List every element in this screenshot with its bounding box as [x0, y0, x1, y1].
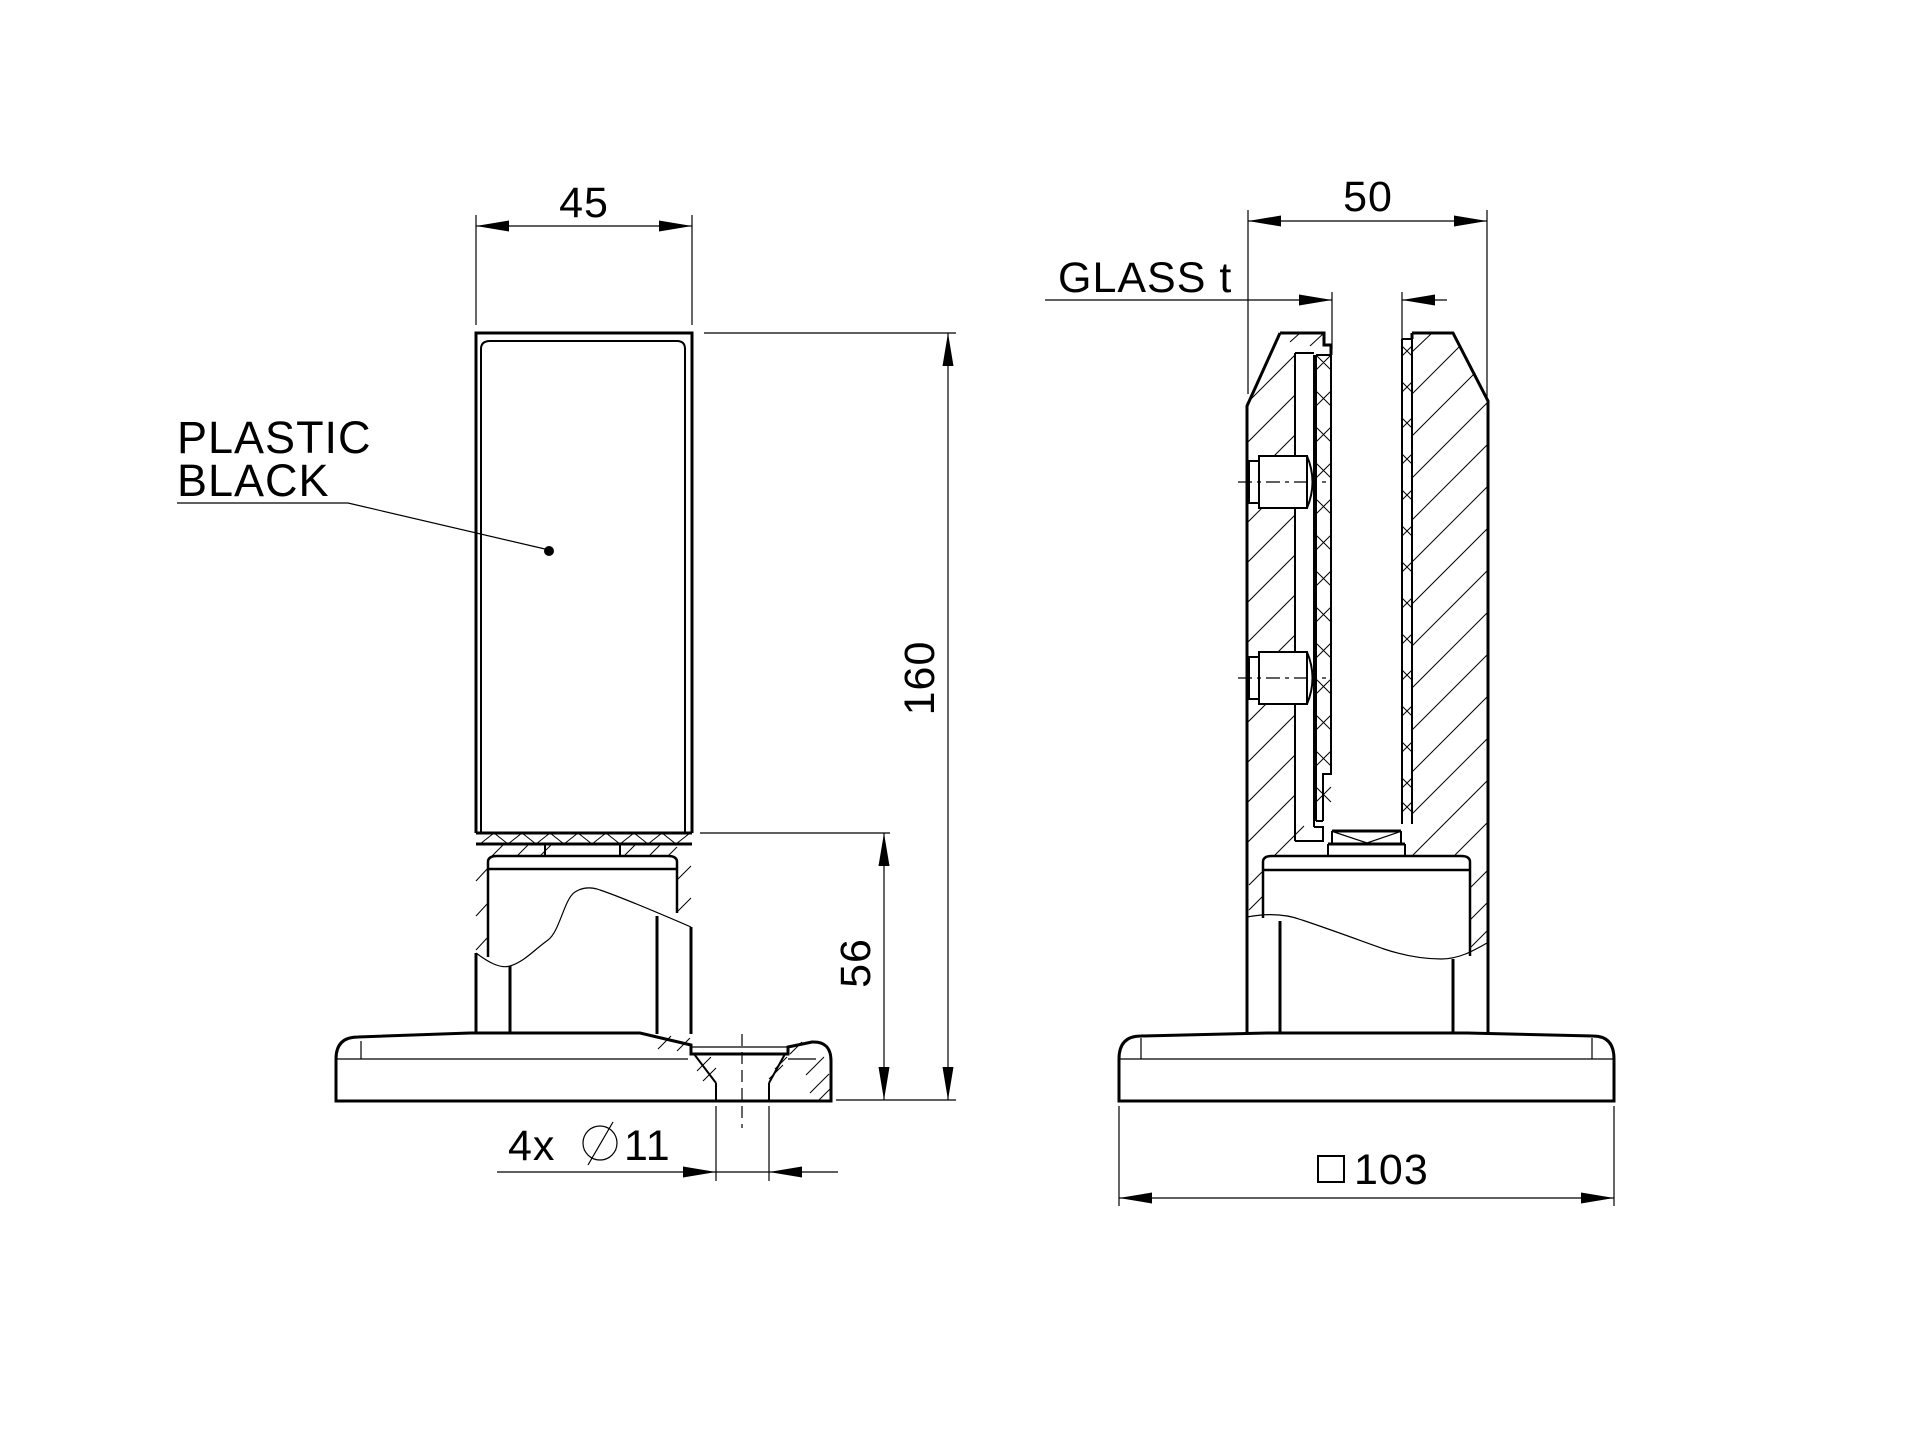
set-screw-top — [1238, 456, 1326, 508]
side-base-inner-lines — [1119, 1038, 1614, 1059]
front-base-height-dim-label: 56 — [832, 938, 880, 988]
material-leader-line — [177, 503, 545, 549]
dim-45-arrow-right — [659, 221, 692, 232]
front-dimensions: 45 160 56 4x 11 — [476, 179, 956, 1181]
dim-50-arrow-right — [1454, 216, 1487, 227]
glass-thickness-arrow-left — [1299, 295, 1332, 306]
dim-50-arrow-left — [1248, 216, 1281, 227]
side-neck — [1328, 844, 1405, 856]
side-base-outline — [1119, 1033, 1614, 1101]
glass-thickness-arrow-right — [1402, 295, 1435, 306]
dim-11-arrow-left — [683, 1167, 716, 1178]
front-column-lines — [476, 916, 691, 1034]
front-base-inner-lines — [336, 1041, 816, 1059]
side-column-lines — [1280, 921, 1453, 1034]
drawing-sheet: PLASTIC BLACK 45 160 56 4x 11 — [0, 0, 1919, 1440]
front-width-dim-label: 45 — [559, 179, 609, 227]
side-slot-bottom-sides — [1332, 831, 1401, 844]
front-flange — [488, 856, 677, 957]
side-right-cheek-outline — [1412, 333, 1488, 1034]
front-body-outline — [476, 333, 692, 833]
base-width-dim-label: 103 — [1354, 1146, 1429, 1194]
side-slot-bottom — [1328, 831, 1405, 844]
side-dimensions: 50 GLASS t 103 — [1045, 173, 1614, 1206]
dim-45-lines — [476, 215, 692, 325]
glass-thickness-lines — [1045, 292, 1447, 349]
side-hatching-left-cheek — [1247, 333, 1324, 910]
dim-103-arrow-right — [1581, 1193, 1614, 1204]
dim-160-arrow-bottom — [943, 1067, 954, 1100]
side-gasket-right-outline — [1402, 339, 1412, 824]
front-break-line — [476, 888, 691, 967]
dim-160-lines — [704, 333, 956, 1100]
hole-diameter-value: 11 — [624, 1122, 671, 1170]
dim-103-arrow-left — [1119, 1193, 1152, 1204]
dim-45-arrow-left — [476, 221, 509, 232]
front-view: PLASTIC BLACK — [177, 333, 831, 1128]
front-body-inner-line — [481, 341, 685, 833]
side-gasket-hatch-right — [1402, 346, 1412, 812]
diameter-symbol-icon — [583, 1122, 617, 1165]
glass-thickness-label: GLASS t — [1058, 254, 1232, 302]
side-width-dim-label: 50 — [1343, 173, 1393, 221]
side-setting-block-vee — [1334, 832, 1399, 843]
front-gasket-band-hatch — [480, 833, 690, 844]
material-leader-dot — [544, 546, 554, 556]
front-height-dim-label: 160 — [896, 641, 944, 716]
side-gasket-left-outline — [1316, 355, 1331, 821]
front-neck — [545, 844, 620, 856]
side-break-line — [1247, 915, 1487, 959]
dim-56-arrow-top — [879, 833, 890, 866]
technical-drawing: PLASTIC BLACK 45 160 56 4x 11 — [0, 0, 1919, 1440]
dim-50-lines — [1248, 210, 1487, 399]
set-screw-bottom — [1238, 652, 1326, 704]
dim-56-arrow-bottom — [879, 1067, 890, 1100]
square-symbol — [1318, 1156, 1344, 1182]
dim-160-arrow-top — [943, 333, 954, 366]
front-base-outline — [336, 1033, 831, 1101]
side-view — [1119, 333, 1614, 1101]
dim-11-arrow-right — [769, 1167, 802, 1178]
side-gasket-hatch-left — [1316, 355, 1331, 802]
side-clamp-plate — [1295, 353, 1323, 841]
hole-count-label: 4x — [508, 1122, 555, 1170]
front-hatching — [476, 844, 831, 1101]
side-flange — [1263, 856, 1470, 956]
material-label-line2: BLACK — [177, 455, 330, 506]
